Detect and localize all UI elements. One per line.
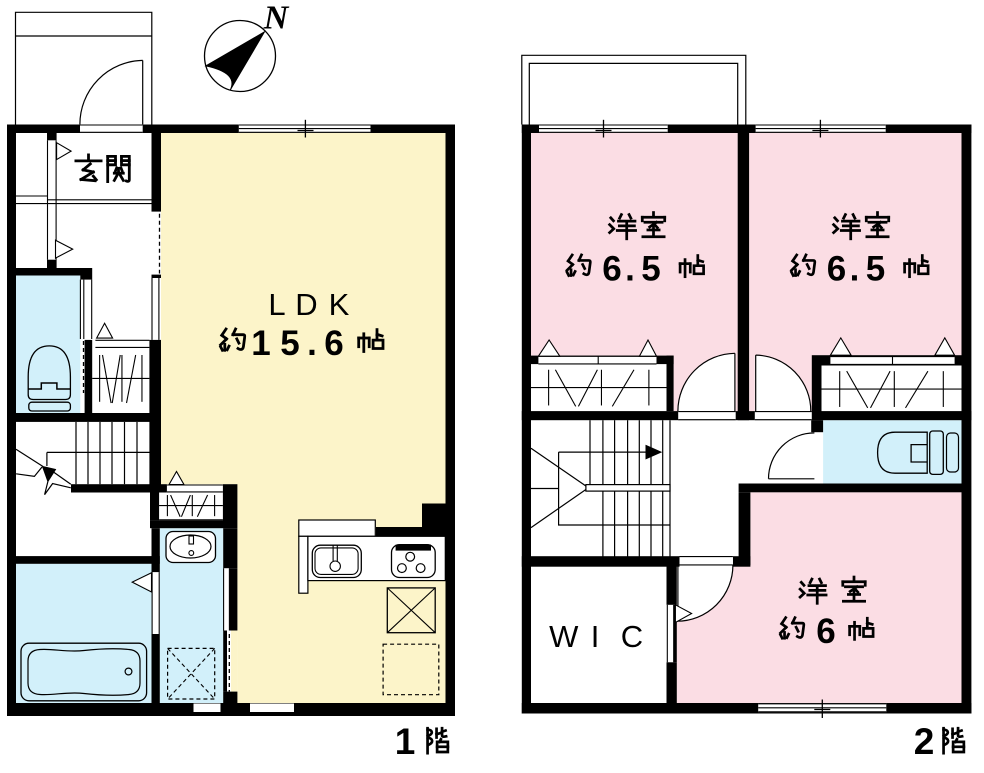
svg-text:6: 6 xyxy=(827,250,846,289)
svg-text:.: . xyxy=(307,324,317,363)
svg-text:6: 6 xyxy=(816,612,835,651)
svg-text:C: C xyxy=(621,619,643,654)
svg-text:N: N xyxy=(263,0,290,37)
svg-text:I: I xyxy=(591,619,600,654)
svg-text:1: 1 xyxy=(251,324,270,363)
svg-text:K: K xyxy=(329,287,350,322)
svg-text:6: 6 xyxy=(324,324,343,363)
svg-text:W: W xyxy=(549,619,579,654)
svg-text:5: 5 xyxy=(280,324,299,363)
svg-text:5: 5 xyxy=(866,250,885,289)
svg-text:.: . xyxy=(850,250,860,289)
svg-text:1: 1 xyxy=(395,721,416,762)
svg-text:L: L xyxy=(268,287,285,322)
svg-text:6: 6 xyxy=(602,250,621,289)
svg-text:5: 5 xyxy=(641,250,660,289)
svg-text:2: 2 xyxy=(914,721,935,762)
svg-text:D: D xyxy=(295,287,317,322)
svg-text:.: . xyxy=(625,250,635,289)
